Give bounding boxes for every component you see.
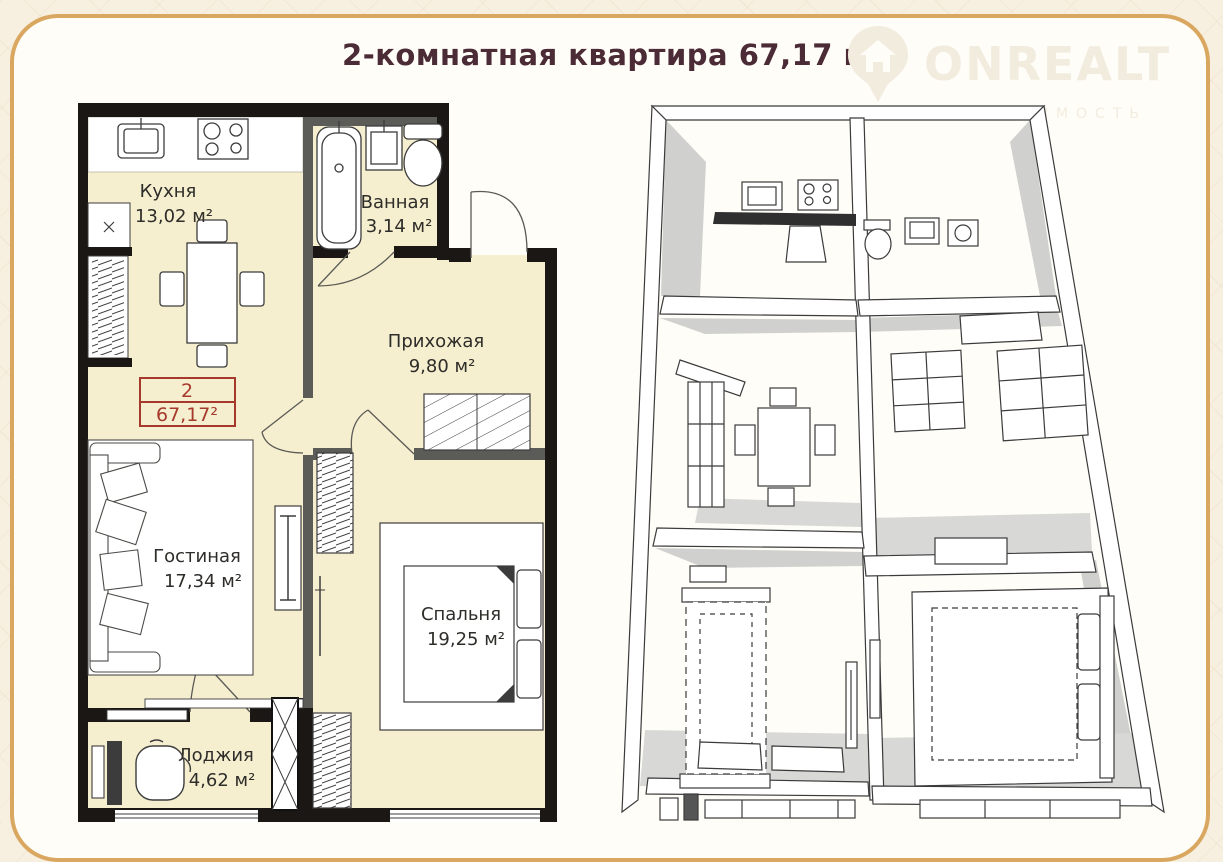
bathroom-area: 3,14 м² [366, 216, 433, 237]
kitchen-sink-icon [118, 118, 164, 158]
dining-3d [676, 360, 835, 507]
vent-shaft [88, 203, 130, 251]
kitchen-area: 13,02 м² [135, 206, 213, 227]
bathroom-label: Ванная [361, 192, 430, 213]
stove-icon [198, 119, 248, 159]
bedroom-wardrobe-top [317, 453, 353, 553]
bathroom-3d [864, 218, 978, 259]
loggia-desk [92, 741, 122, 805]
bathtub-icon [317, 121, 361, 249]
kitchen-label: Кухня [140, 181, 197, 202]
entry-door [471, 192, 527, 259]
tv-living-icon [275, 506, 301, 610]
loggia-label: Лоджия [178, 745, 254, 766]
hallway-area: 9,80 м² [409, 356, 476, 377]
apartment-label: 2 67,17² [140, 378, 235, 426]
brand-name: ONREALT [924, 41, 1171, 87]
bed-icon [380, 523, 543, 730]
structural-column [272, 698, 298, 810]
bedroom-label: Спальня [421, 604, 501, 625]
living-area: 17,34 м² [164, 571, 242, 592]
apartment-number: 2 [181, 380, 193, 402]
apartment-area: 67,17² [156, 404, 218, 426]
floor-plan-2d: 2 67,17² [60, 95, 580, 822]
house-pin-icon [846, 24, 910, 104]
living-label: Гостиная [153, 546, 241, 567]
kitchen-window [86, 247, 132, 367]
hallway-label: Прихожая [388, 331, 484, 352]
toilet-icon [404, 124, 442, 186]
hallway-wardrobe [424, 394, 530, 450]
loggia-area: 4,62 м² [189, 770, 256, 791]
washbasin-icon [366, 120, 402, 170]
floor-plan-page: { "page": { "title": "2-комнатная кварти… [0, 0, 1223, 822]
kitchen-3d [713, 180, 856, 262]
bedroom-wardrobe-bottom [313, 713, 351, 808]
bedroom-area: 19,25 м² [427, 629, 505, 650]
floor-plan-3d [605, 98, 1175, 822]
